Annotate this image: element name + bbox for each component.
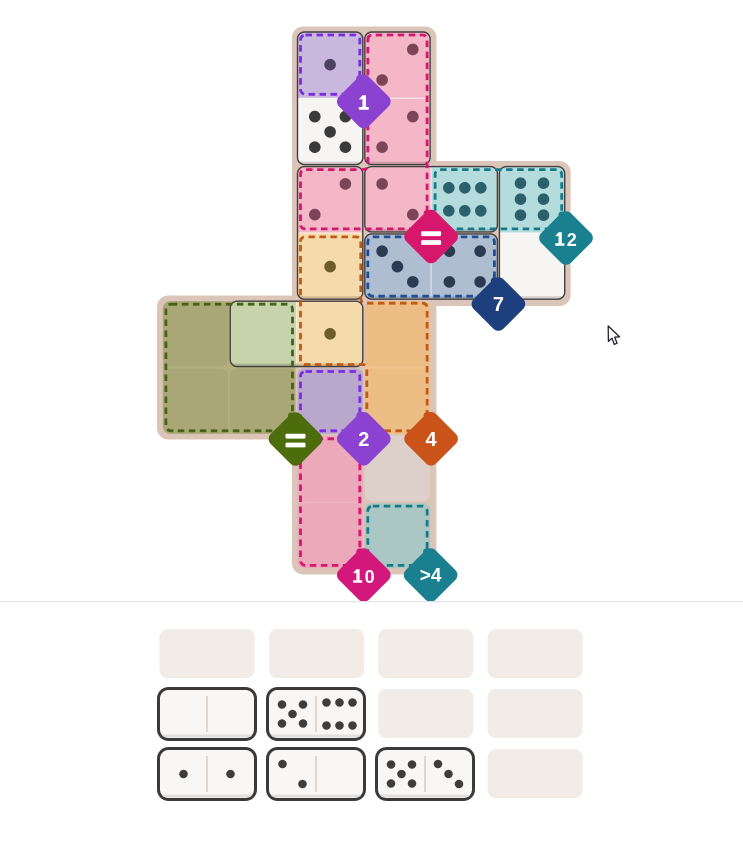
- svg-text:4: 4: [426, 429, 438, 451]
- svg-text:7: 7: [493, 294, 504, 316]
- svg-text:2: 2: [567, 230, 577, 250]
- svg-text:>4: >4: [420, 566, 442, 587]
- svg-text:0: 0: [365, 567, 375, 587]
- svg-text:2: 2: [358, 429, 369, 451]
